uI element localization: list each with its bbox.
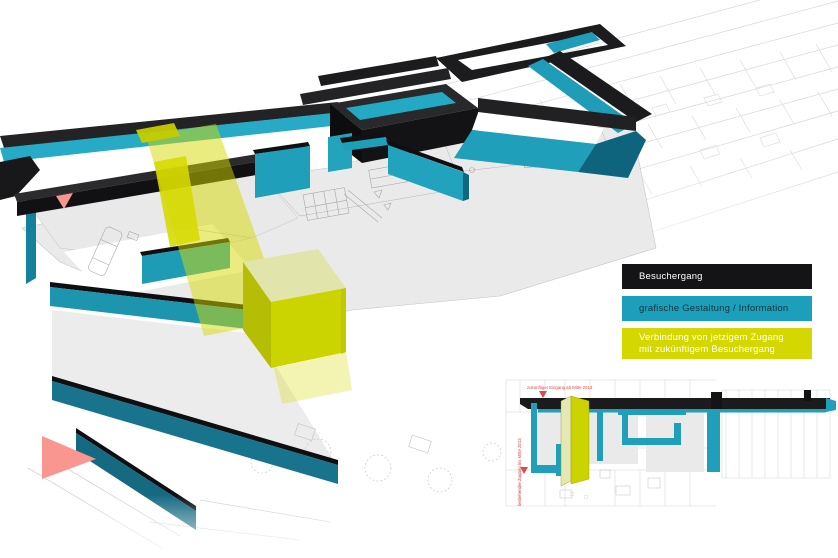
legend-item-besuchergang: Besuchergang [622,264,812,289]
legend-item-verbindung: Verbindung von jetzigem Zugang mit zukün… [622,328,812,359]
info-wall-end [463,172,469,201]
inset-band-tip [520,398,528,409]
inset-verbindung-band [561,396,589,486]
inset-arrow-top [539,391,547,398]
legend-item-information: grafische Gestaltung / Information [622,296,812,321]
inset-dot [584,495,588,499]
inset-yellow-front-face [571,396,589,484]
inset-band-block [804,390,811,401]
architectural-diagram-page: zukünftiger Eingang ab Mitte 2013 besteh… [0,0,838,558]
legend-label-besuchergang: Besuchergang [639,271,703,282]
bottom-fade [0,495,520,558]
besuchergang-loop [436,24,626,82]
planter-icon [409,435,432,453]
inset-annotation-left: bestehender Zugang bis Mitte 2013 [517,438,522,506]
tree-icon [483,443,501,461]
legend-label-verbindung-line1: Verbindung von jetzigem Zugang [639,332,784,343]
inset-annotation-top: zukünftiger Eingang ab Mitte 2013 [527,385,593,390]
inset-teal-wall [597,409,603,461]
inset-yellow-left-face [561,396,571,486]
verbindung-block-edge [341,288,346,354]
legend-label-information: grafische Gestaltung / Information [639,303,788,314]
inset-plan: zukünftiger Eingang ab Mitte 2013 besteh… [506,380,836,506]
inset-teal-strip [618,409,686,415]
inset-band-block [711,392,722,410]
legend: Besuchergang grafische Gestaltung / Info… [622,264,812,359]
tree-icon [428,468,452,492]
legend-label-verbindung-line2: mit zukünftigem Besuchergang [639,344,775,355]
inset-teal-end [826,398,836,412]
inset-teal-wall [707,410,720,472]
tree-icon [365,455,391,481]
